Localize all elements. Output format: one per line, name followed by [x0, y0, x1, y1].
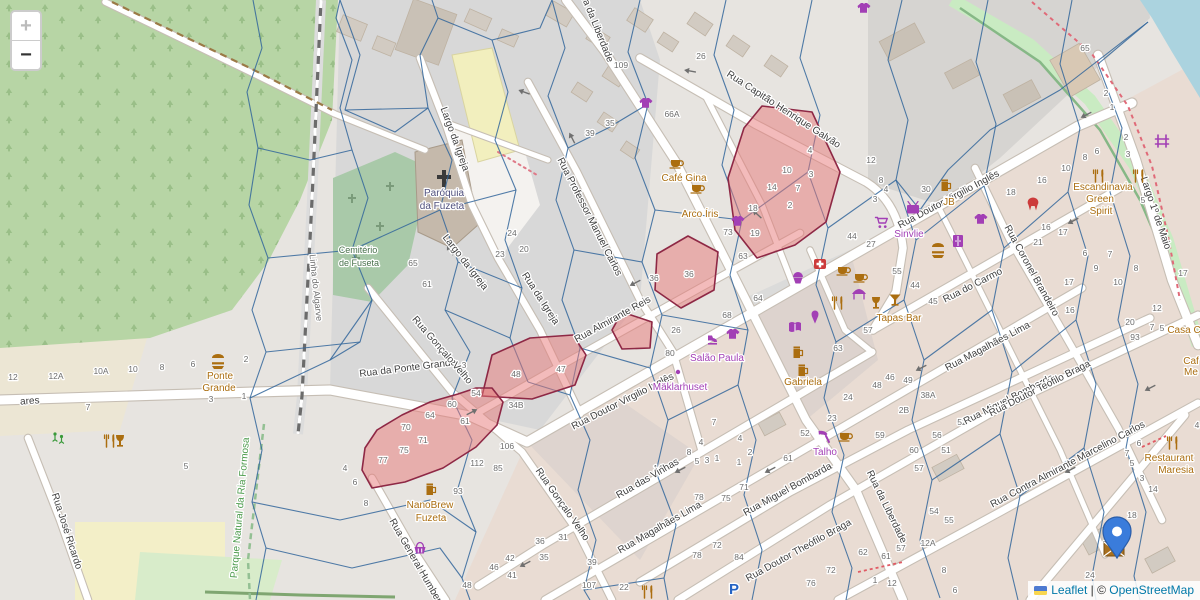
house-number: 46: [885, 372, 895, 382]
house-number: 85: [493, 463, 503, 473]
house-number: 1: [1110, 102, 1115, 112]
house-number: 35: [539, 552, 549, 562]
house-number: 5: [695, 456, 700, 466]
house-number: 1: [873, 575, 878, 585]
house-number: 107: [582, 580, 596, 590]
house-number: 1: [737, 457, 742, 467]
poi-label: NanoBrew: [407, 500, 454, 511]
house-number: 60: [447, 399, 457, 409]
house-number: 10: [1061, 163, 1071, 173]
house-number: 8: [1083, 152, 1088, 162]
house-number: 4: [808, 145, 813, 155]
house-number: 48: [462, 580, 472, 590]
house-number: 2: [1104, 88, 1109, 98]
attribution-bar: Leaflet | © OpenStreetMap: [1028, 581, 1200, 600]
house-number: 8: [160, 362, 165, 372]
house-number: 61: [460, 416, 470, 426]
house-number: 93: [1130, 332, 1140, 342]
poi-label: Cemitério: [339, 245, 378, 255]
poi-label: Maresia: [1158, 465, 1194, 476]
poi-label: Caf: [1183, 356, 1199, 367]
house-number: 60: [909, 445, 919, 455]
house-number: 5: [1160, 323, 1165, 333]
house-number: 14: [767, 182, 777, 192]
poi-label: Fuzeta: [416, 513, 447, 524]
house-number: 54: [929, 506, 939, 516]
attribution-separator: |: [1091, 583, 1094, 597]
poi-label: Restaurant: [1145, 453, 1194, 464]
house-number: 22: [619, 582, 629, 592]
house-number: 1: [715, 453, 720, 463]
house-number: 16: [1041, 222, 1051, 232]
poi-label: Spirit: [1090, 206, 1113, 217]
house-number: 57: [863, 325, 873, 335]
house-number: 45: [928, 296, 938, 306]
house-number: 2B: [899, 405, 910, 415]
map-canvas[interactable]: 1092666A35391284341031472181973633636266…: [0, 0, 1200, 600]
poi-label: Escandinavia: [1073, 182, 1133, 193]
house-number: 23: [495, 249, 505, 259]
house-number: 9: [1094, 263, 1099, 273]
house-number: 106: [500, 441, 514, 451]
poi-label: Casa C: [1167, 325, 1200, 336]
house-number: 3: [209, 394, 214, 404]
house-number: 6: [353, 477, 358, 487]
parking-icon: P: [729, 581, 739, 598]
house-number: 65: [408, 258, 418, 268]
house-number: 109: [614, 60, 628, 70]
house-number: 17: [1064, 277, 1074, 287]
house-number: 75: [399, 445, 409, 455]
furniture-icon: [953, 235, 963, 247]
house-number: 18: [748, 203, 758, 213]
house-number: 10: [128, 364, 138, 374]
house-number: 17: [1058, 227, 1068, 237]
house-number: 75: [721, 493, 731, 503]
house-number: 7: [1108, 249, 1113, 259]
house-number: 24: [507, 228, 517, 238]
house-number: 66A: [664, 109, 679, 119]
poi-label: Ponte: [207, 371, 234, 382]
house-number: 76: [806, 578, 816, 588]
house-number: 55: [944, 515, 954, 525]
house-number: 19: [750, 228, 760, 238]
house-number: 73: [723, 227, 733, 237]
house-number: 2: [788, 200, 793, 210]
poi-label: Arco Íris: [682, 207, 719, 220]
house-number: 1: [242, 391, 247, 401]
house-number: 39: [587, 557, 597, 567]
house-number: 12: [8, 372, 18, 382]
house-number: 56: [932, 430, 942, 440]
house-number: 112: [470, 458, 484, 468]
house-number: 6: [1095, 146, 1100, 156]
house-number: 26: [671, 325, 681, 335]
house-number: 4: [884, 184, 889, 194]
zoom-in-button[interactable]: +: [12, 12, 40, 41]
house-number: 20: [519, 244, 529, 254]
house-number: 39: [585, 128, 595, 138]
house-number: 78: [692, 550, 702, 560]
house-number: 64: [425, 410, 435, 420]
house-number: 61: [881, 551, 891, 561]
openstreetmap-link[interactable]: OpenStreetMap: [1109, 583, 1194, 597]
house-number: 21: [1033, 237, 1043, 247]
house-number: 48: [872, 380, 882, 390]
house-number: 35: [605, 118, 615, 128]
dot-icon: [676, 370, 680, 374]
house-number: 8: [687, 447, 692, 457]
house-number: 4: [1195, 420, 1200, 430]
house-number: 10: [782, 165, 792, 175]
house-number: 10A: [93, 366, 108, 376]
house-number: 4: [343, 463, 348, 473]
house-number: 55: [892, 266, 902, 276]
poi-label: Me: [1184, 367, 1198, 378]
house-number: 93: [453, 486, 463, 496]
copyright-prefix: ©: [1097, 583, 1106, 597]
house-number: 12: [866, 155, 876, 165]
house-number: 8: [942, 565, 947, 575]
house-number: 2: [244, 354, 249, 364]
poi-label: Green: [1086, 194, 1114, 205]
house-number: 7: [712, 417, 717, 427]
house-number: 63: [738, 251, 748, 261]
house-number: 24: [843, 392, 853, 402]
street-label: ares: [20, 395, 40, 407]
house-number: 14: [1148, 484, 1158, 494]
zoom-out-button[interactable]: −: [12, 41, 40, 69]
firstaid-icon: [814, 259, 826, 269]
poi-label: Café Gina: [661, 173, 706, 184]
house-number: 6: [1137, 438, 1142, 448]
house-number: 70: [401, 422, 411, 432]
house-number: 23: [827, 413, 837, 423]
house-number: 12: [887, 578, 897, 588]
house-number: 47: [556, 364, 566, 374]
house-number: 63: [833, 343, 843, 353]
house-number: 72: [826, 565, 836, 575]
house-number: 18: [1127, 510, 1137, 520]
house-number: 71: [418, 435, 428, 445]
house-number: 6: [953, 585, 958, 595]
house-number: 54: [471, 388, 481, 398]
house-number: 7: [796, 183, 801, 193]
zoom-control: + −: [10, 10, 42, 71]
house-number: 36: [535, 536, 545, 546]
house-number: 12A: [48, 371, 63, 381]
house-number: 44: [910, 280, 920, 290]
house-number: 46: [489, 562, 499, 572]
house-number: 3: [809, 169, 814, 179]
poi-label: da Fuzeta: [420, 201, 465, 212]
house-number: 3: [873, 194, 878, 204]
house-number: 3: [1126, 149, 1131, 159]
house-number: 4: [699, 437, 704, 447]
house-number: 2: [1124, 132, 1129, 142]
poi-label: JB: [943, 197, 955, 208]
house-number: 7: [86, 402, 91, 412]
house-number: 49: [903, 375, 913, 385]
poi-label: Paróquia: [424, 188, 464, 199]
poi-label: Gabriela: [784, 377, 822, 388]
house-number: 16: [1065, 305, 1075, 315]
house-number: 8: [364, 498, 369, 508]
house-number: 51: [941, 445, 951, 455]
house-number: 61: [783, 453, 793, 463]
house-number: 18: [1006, 187, 1016, 197]
parking-icon-letter: P: [729, 581, 739, 598]
house-number: 6: [1083, 248, 1088, 258]
house-number: 27: [866, 239, 876, 249]
leaflet-link[interactable]: Leaflet: [1051, 583, 1087, 597]
house-number: 52: [800, 428, 810, 438]
house-number: 7: [1150, 322, 1155, 332]
poi-label: de Fuseta: [339, 258, 379, 268]
house-number: 2: [748, 447, 753, 457]
house-number: 41: [507, 570, 517, 580]
house-number: 6: [191, 359, 196, 369]
house-number: 84: [734, 552, 744, 562]
house-number: 12A: [920, 538, 935, 548]
house-number: 3: [1140, 473, 1145, 483]
house-number: 71: [739, 482, 749, 492]
house-number: 57: [896, 543, 906, 553]
house-number: 17: [1178, 268, 1188, 278]
house-number: 5: [1130, 458, 1135, 468]
house-number: 16: [1037, 175, 1047, 185]
house-number: 72: [712, 540, 722, 550]
house-number: 4: [738, 433, 743, 443]
poi-label: Sinvlie: [894, 229, 924, 240]
house-number: 65: [1080, 43, 1090, 53]
house-number: 62: [858, 547, 868, 557]
house-number: 80: [665, 348, 675, 358]
house-number: 10: [1113, 277, 1123, 287]
house-number: 68: [722, 310, 732, 320]
house-number: 7: [1125, 448, 1130, 458]
poi-label: Tapas Bar: [876, 313, 922, 324]
house-number: 36: [649, 273, 659, 283]
house-number: 31: [558, 532, 568, 542]
house-number: 26: [696, 51, 706, 61]
house-number: 12: [1152, 303, 1162, 313]
house-number: 64: [753, 293, 763, 303]
ukraine-flag-icon: [1034, 586, 1047, 595]
house-number: 61: [422, 279, 432, 289]
house-number: 24: [1085, 570, 1095, 580]
house-number: 59: [875, 430, 885, 440]
house-number: 30: [921, 184, 931, 194]
house-number: 8: [1134, 263, 1139, 273]
poi-label: Mäklarhuset: [653, 382, 708, 393]
house-number: 34B: [508, 400, 523, 410]
house-number: 5: [184, 461, 189, 471]
poi-label: Grande: [202, 383, 236, 394]
house-number: 48: [511, 369, 521, 379]
house-number: 36: [684, 269, 694, 279]
poi-label: Talho: [813, 447, 837, 458]
house-number: 44: [847, 231, 857, 241]
map-svg: 1092666A35391284341031472181973633636266…: [0, 0, 1200, 600]
house-number: 38A: [920, 390, 935, 400]
house-number: 42: [505, 553, 515, 563]
poi-label: Salão Paula: [690, 353, 744, 364]
house-number: 57: [914, 463, 924, 473]
house-number: 3: [705, 455, 710, 465]
house-number: 77: [378, 455, 388, 465]
house-number: 20: [1125, 317, 1135, 327]
